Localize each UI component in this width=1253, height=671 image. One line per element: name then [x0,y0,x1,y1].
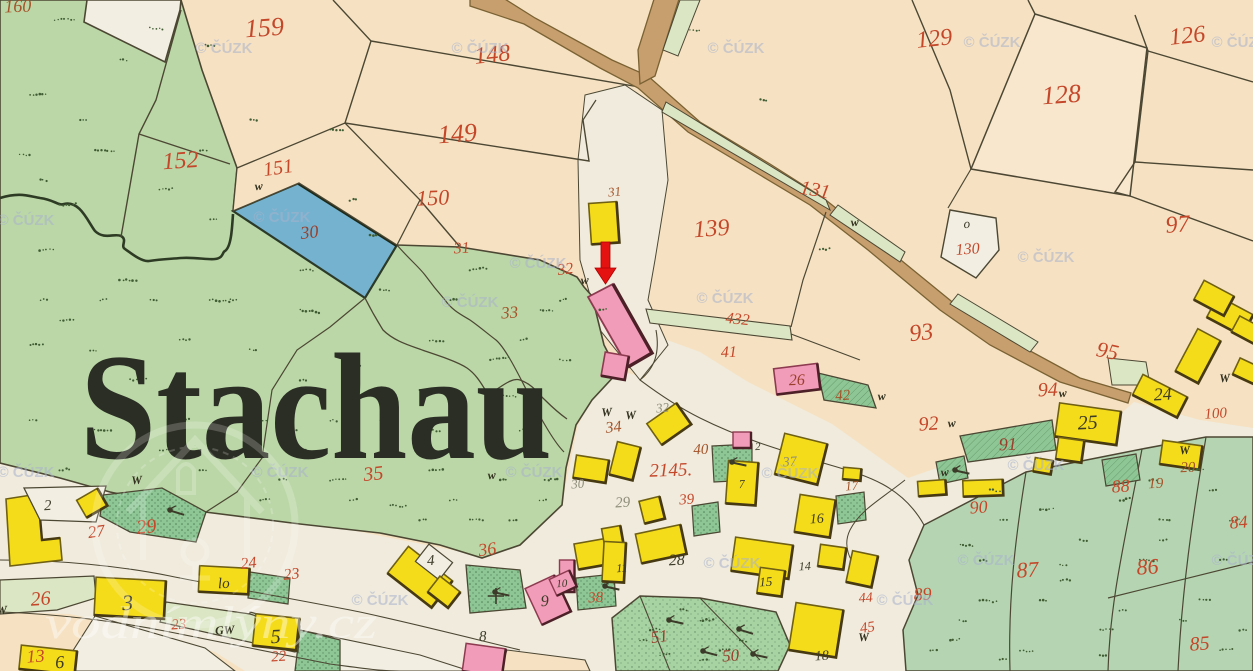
svg-text:© ČÚZK: © ČÚZK [964,33,1021,51]
svg-text:38: 38 [587,589,605,606]
svg-text:14: 14 [798,559,811,574]
svg-text:32: 32 [654,399,670,415]
svg-text:129: 129 [915,24,954,54]
svg-text:97: 97 [1165,211,1192,239]
svg-text:15: 15 [759,574,773,590]
svg-text:35: 35 [361,462,384,486]
svg-text:159: 159 [244,12,285,44]
svg-text:© ČÚZK: © ČÚZK [0,463,55,481]
svg-text:11: 11 [616,561,628,576]
svg-text:128: 128 [1041,79,1082,111]
svg-text:18: 18 [814,649,829,665]
svg-text:© ČÚZK: © ČÚZK [1018,248,1075,266]
svg-text:© ČÚZK: © ČÚZK [506,463,563,481]
svg-text:149: 149 [437,118,478,150]
svg-text:151: 151 [262,155,295,181]
svg-text:41: 41 [721,344,738,362]
svg-text:6: 6 [55,652,65,671]
svg-text:39: 39 [678,491,696,508]
svg-text:86: 86 [1136,553,1160,579]
svg-text:13: 13 [26,645,45,666]
svg-text:91: 91 [998,434,1017,455]
svg-text:© ČÚZK: © ČÚZK [762,464,819,482]
svg-text:130: 130 [955,240,980,259]
svg-text:2145.: 2145. [649,459,692,481]
svg-text:© ČÚZK: © ČÚZK [1212,551,1253,569]
svg-text:© ČÚZK: © ČÚZK [442,293,499,311]
svg-text:50: 50 [721,645,740,665]
svg-text:9: 9 [540,593,549,610]
svg-text:85: 85 [1189,632,1210,655]
svg-text:40: 40 [693,442,709,459]
svg-text:432: 432 [725,310,751,329]
svg-text:93: 93 [908,319,935,347]
svg-text:42: 42 [835,387,852,404]
svg-text:28: 28 [668,552,685,570]
svg-text:© ČÚZK: © ČÚZK [510,254,567,272]
svg-text:139: 139 [693,215,731,243]
svg-text:51: 51 [649,626,668,647]
svg-text:24: 24 [1153,384,1172,405]
svg-text:90: 90 [969,496,988,517]
svg-text:4: 4 [427,553,436,569]
svg-text:34: 34 [604,418,623,437]
svg-text:o: o [963,216,971,231]
svg-text:29: 29 [615,494,632,511]
svg-text:16: 16 [809,512,824,528]
svg-text:92: 92 [918,412,939,435]
svg-text:87: 87 [1016,556,1041,583]
svg-text:8: 8 [479,629,488,645]
svg-text:© ČÚZK: © ČÚZK [196,39,253,57]
svg-text:84: 84 [1229,511,1248,532]
svg-text:© ČÚZK: © ČÚZK [697,289,754,307]
svg-text:30: 30 [570,476,586,492]
svg-text:22: 22 [271,648,288,665]
svg-text:© ČÚZK: © ČÚZK [0,211,55,229]
svg-text:25: 25 [1077,411,1098,434]
svg-text:19: 19 [1148,476,1164,493]
svg-text:© ČÚZK: © ČÚZK [1008,456,1065,474]
svg-text:10: 10 [556,578,568,591]
svg-text:160: 160 [4,0,32,16]
svg-text:© ČÚZK: © ČÚZK [452,39,509,57]
svg-text:lo: lo [218,576,231,593]
svg-text:31: 31 [606,183,621,199]
svg-text:36: 36 [476,538,498,560]
svg-text:2: 2 [44,498,53,514]
svg-text:94: 94 [1037,379,1058,402]
svg-text:© ČÚZK: © ČÚZK [877,591,934,609]
svg-text:29: 29 [135,515,157,539]
svg-text:© ČÚZK: © ČÚZK [708,39,765,57]
svg-text:© ČÚZK: © ČÚZK [1212,33,1253,51]
svg-text:© ČÚZK: © ČÚZK [958,551,1015,569]
svg-text:126: 126 [1168,21,1207,51]
svg-text:152: 152 [162,147,200,175]
svg-text:© ČÚZK: © ČÚZK [254,208,311,226]
svg-text:17: 17 [845,478,860,494]
svg-text:44: 44 [858,591,873,607]
svg-text:33: 33 [499,302,518,322]
svg-text:88: 88 [1111,475,1130,496]
svg-text:100: 100 [1204,405,1228,423]
svg-text:31: 31 [452,239,470,257]
svg-text:20: 20 [1180,460,1196,477]
svg-text:vodnímlýny.cz: vodnímlýny.cz [45,597,377,648]
svg-text:26: 26 [789,372,806,390]
svg-text:150: 150 [416,184,450,210]
svg-text:© ČÚZK: © ČÚZK [704,554,761,572]
svg-text:Stachau: Stachau [80,323,552,491]
